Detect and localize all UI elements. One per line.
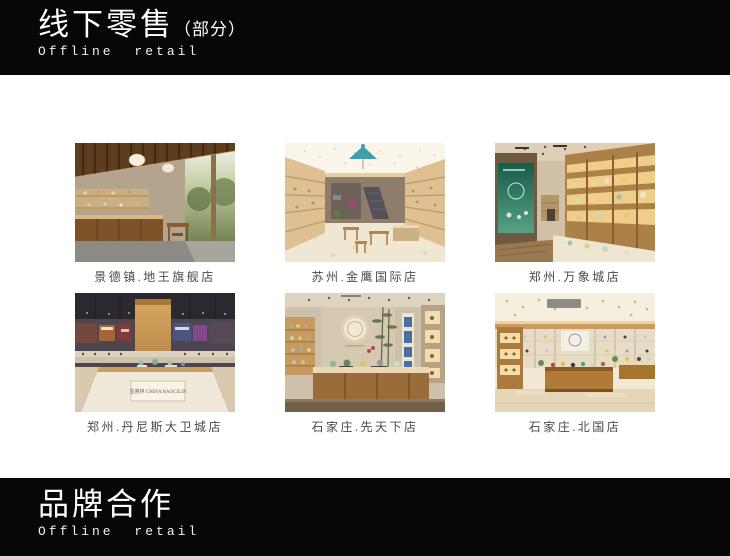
store-figure-suzhou: 苏州.金鹰国际店 — [285, 143, 445, 293]
store-figure-wanxiang: 郑州.万象城店 — [495, 143, 655, 293]
store-photo-suzhou-art — [285, 143, 445, 262]
baocilin-sign-text: 宝瓷林 CHINA BAOCILIN — [130, 388, 187, 395]
store-figure-beiguo: 石家庄.北国店 — [495, 293, 655, 443]
store-photo-dennis-art: 宝瓷林 CHINA BAOCILIN — [75, 293, 235, 412]
store-photo-suzhou — [285, 143, 445, 262]
header-title: 线下零售（部分） — [38, 7, 730, 43]
store-photo-wanxiang-art — [495, 143, 655, 262]
store-photo-xiantianxia — [285, 293, 445, 412]
store-photo-jingdezhen-art — [75, 143, 235, 262]
offline-retail-header: 线下零售（部分） Offline retail — [0, 0, 730, 75]
footer-title-zh: 品牌合作 — [38, 487, 174, 522]
store-caption: 郑州.万象城店 — [495, 270, 655, 284]
brand-cooperation-footer: 品牌合作 Offline retail — [0, 478, 730, 556]
store-photo-beiguo-art — [495, 293, 655, 412]
header-title-suffix: （部分） — [174, 20, 246, 39]
store-photo-beiguo — [495, 293, 655, 412]
store-caption: 石家庄.北国店 — [495, 420, 655, 434]
store-figure-jingdezhen: 景德镇.地王旗舰店 — [75, 143, 235, 293]
store-figure-dennis: 宝瓷林 CHINA BAOCILIN 郑州.丹尼斯大卫城店 — [75, 293, 235, 443]
footer-subtitle-en: Offline retail — [38, 524, 730, 539]
store-photo-grid: 景德镇.地王旗舰店 — [75, 143, 655, 443]
store-caption: 苏州.金鹰国际店 — [285, 270, 445, 284]
store-photo-jingdezhen — [75, 143, 235, 262]
store-caption: 郑州.丹尼斯大卫城店 — [75, 420, 235, 434]
store-figure-xiantianxia: 石家庄.先天下店 — [285, 293, 445, 443]
brand-retail-page: 线下零售（部分） Offline retail — [0, 0, 730, 559]
footer-title: 品牌合作 — [38, 487, 730, 523]
store-photo-dennis: 宝瓷林 CHINA BAOCILIN — [75, 293, 235, 412]
store-photo-wanxiang — [495, 143, 655, 262]
store-caption: 景德镇.地王旗舰店 — [75, 270, 235, 284]
header-title-zh: 线下零售 — [38, 7, 174, 42]
store-caption: 石家庄.先天下店 — [285, 420, 445, 434]
store-photo-xiantianxia-art — [285, 293, 445, 412]
header-subtitle-en: Offline retail — [38, 44, 730, 59]
